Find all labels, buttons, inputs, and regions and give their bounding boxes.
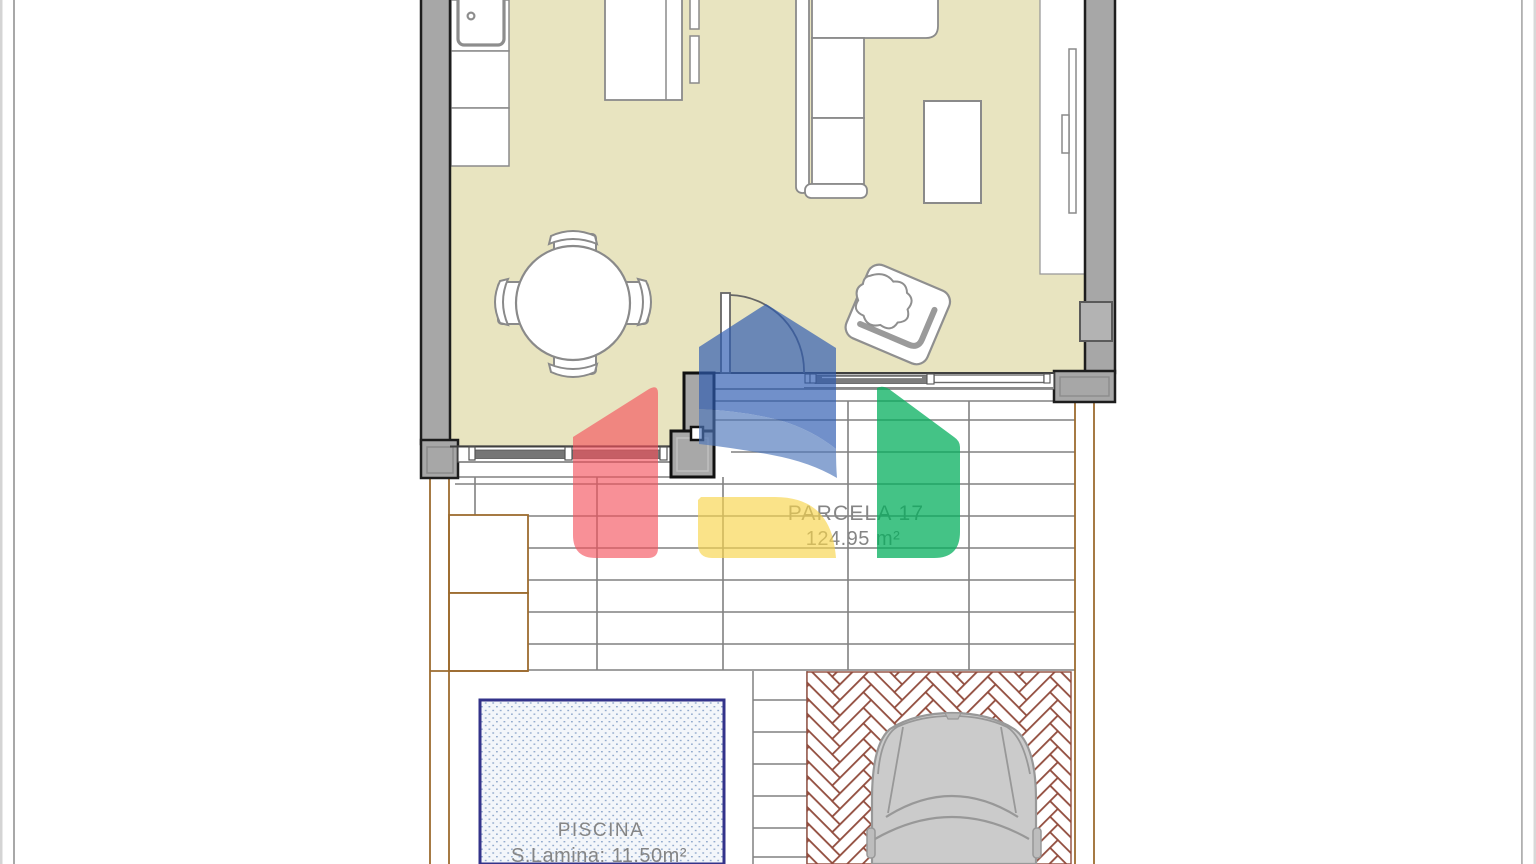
svg-text:S.Lamina: 11.50m²: S.Lamina: 11.50m²	[511, 845, 687, 864]
svg-text:PISCINA: PISCINA	[558, 820, 645, 841]
